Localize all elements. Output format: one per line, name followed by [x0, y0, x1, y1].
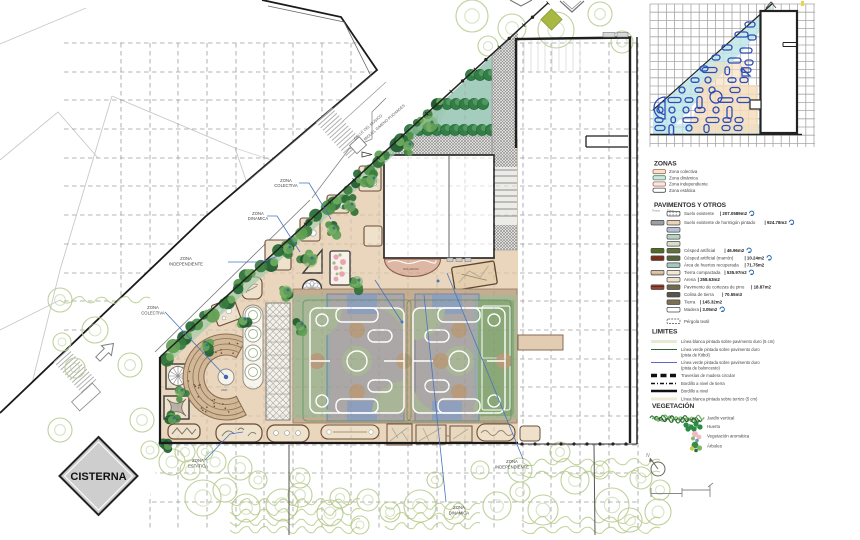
svg-text:Línea blanca pintada sobre ter: Línea blanca pintada sobre terrizo (5 cm…	[681, 397, 758, 402]
svg-text:PAVIMENTOS Y OTROS: PAVIMENTOS Y OTROS	[654, 202, 727, 209]
svg-text:Línea verde pintada sobre pavi: Línea verde pintada sobre pavimento duro	[681, 347, 760, 352]
svg-text:(pista de fútbol): (pista de fútbol)	[681, 353, 710, 358]
svg-text:| 535.97m2: | 535.97m2	[724, 270, 747, 275]
svg-text:Tierra: Tierra	[684, 300, 696, 305]
svg-text:SOLARIUM: SOLARIUM	[403, 267, 419, 271]
svg-text:| 924.78m2: | 924.78m2	[765, 220, 788, 225]
svg-text:Zona estática: Zona estática	[669, 188, 696, 193]
svg-text:DINAMICA: DINAMICA	[449, 511, 470, 516]
svg-text:VEGETACIÓN: VEGETACIÓN	[652, 401, 694, 410]
svg-text:ZONA: ZONA	[506, 459, 518, 464]
svg-text:Césped artificial (marrón): Césped artificial (marrón)	[684, 256, 734, 261]
svg-text:| 46.96m2: | 46.96m2	[724, 248, 744, 253]
svg-text:CISTERNA: CISTERNA	[70, 471, 126, 483]
svg-text:Bordillo a nivel de tierra: Bordillo a nivel de tierra	[681, 381, 725, 386]
svg-text:LIMITES: LIMITES	[652, 329, 678, 336]
svg-text:Huerto: Huerto	[707, 424, 721, 429]
svg-text:INDEPENDIENTE: INDEPENDIENTE	[495, 465, 529, 470]
svg-text:| 207.0589m2: | 207.0589m2	[720, 211, 748, 216]
svg-text:N: N	[646, 453, 650, 459]
svg-text:Zona colectiva: Zona colectiva	[669, 169, 698, 174]
svg-text:Suelo existente: Suelo existente	[684, 211, 715, 216]
svg-text:Zona dinámica: Zona dinámica	[669, 175, 698, 180]
svg-text:DINAMICA: DINAMICA	[248, 216, 269, 221]
svg-text:Línea verde pintada sobre pavi: Línea verde pintada sobre pavimento duro	[681, 360, 760, 365]
svg-text:Colina de tierra: Colina de tierra	[684, 292, 714, 297]
svg-text:Suelo existente de hormigón pi: Suelo existente de hormigón pintado	[684, 220, 756, 225]
svg-text:Madera: Madera	[684, 307, 699, 312]
svg-text:ZONA: ZONA	[147, 305, 159, 310]
svg-text:Pérgola textil: Pérgola textil	[684, 319, 709, 324]
svg-text:| 70.55m3: | 70.55m3	[722, 292, 742, 297]
svg-text:COLECTIVA: COLECTIVA	[141, 311, 165, 316]
svg-text:Zona independiente: Zona independiente	[669, 182, 708, 187]
svg-text:COLECTIVA: COLECTIVA	[274, 183, 298, 188]
svg-text:| 18.87m2: | 18.87m2	[751, 285, 771, 290]
svg-text:ZONA: ZONA	[453, 505, 465, 510]
svg-text:| 145.32m2: | 145.32m2	[700, 300, 723, 305]
svg-text:INDEPENDIENTE: INDEPENDIENTE	[169, 262, 203, 267]
svg-text:Bordillo a nivel: Bordillo a nivel	[681, 389, 708, 394]
svg-text:Jardín vertical: Jardín vertical	[707, 416, 734, 421]
svg-text:ESTATICA: ESTATICA	[188, 464, 208, 469]
svg-text:| 3.05m2: | 3.05m2	[700, 307, 718, 312]
svg-text:Césped artificial: Césped artificial	[684, 248, 715, 253]
svg-text:Textura: Textura	[652, 210, 661, 213]
svg-text:Pavimento de cortezas de pino: Pavimento de cortezas de pino	[684, 285, 745, 290]
svg-text:| 258.63m2: | 258.63m2	[698, 277, 721, 282]
svg-text:| 71.75m2: | 71.75m2	[744, 263, 764, 268]
svg-text:Área de huertos recuperada: Área de huertos recuperada	[684, 263, 739, 268]
svg-text:Arena: Arena	[684, 277, 696, 282]
svg-text:ZONA: ZONA	[192, 458, 204, 463]
svg-text:| 10.24m2: | 10.24m2	[744, 256, 764, 261]
svg-text:ANFI: ANFI	[221, 388, 228, 392]
svg-text:Árboles: Árboles	[707, 444, 723, 449]
svg-text:ZONAS: ZONAS	[654, 161, 677, 168]
svg-text:Línea blanca pintada sobre pav: Línea blanca pintada sobre pavimento dur…	[681, 339, 775, 344]
svg-text:ZONA: ZONA	[180, 256, 192, 261]
svg-text:(pista de baloncesto): (pista de baloncesto)	[681, 366, 720, 371]
svg-text:Tierra compactada: Tierra compactada	[684, 270, 721, 275]
svg-text:Vegetación aromática: Vegetación aromática	[707, 434, 750, 439]
svg-text:Travesías de madera circular: Travesías de madera circular	[681, 373, 736, 378]
